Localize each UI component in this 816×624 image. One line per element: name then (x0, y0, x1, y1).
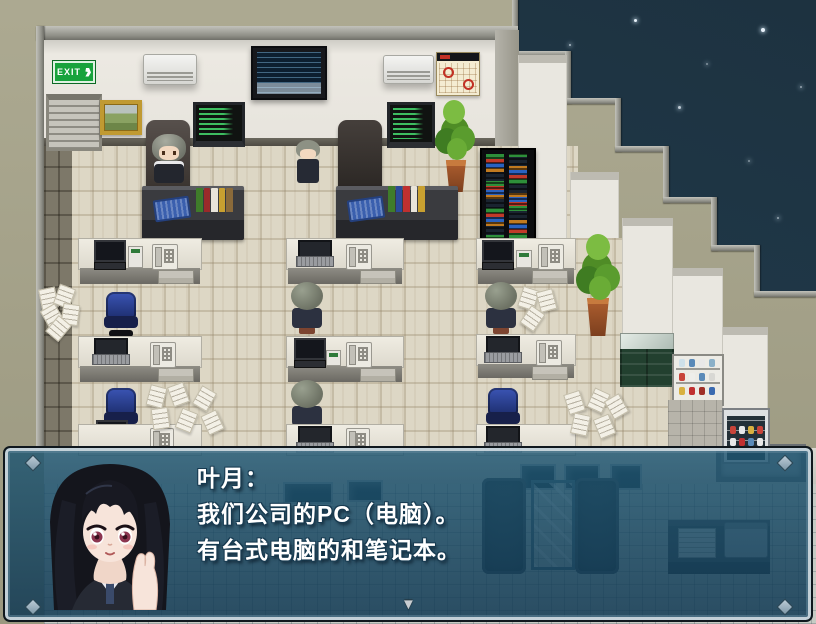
desk-device (516, 250, 532, 268)
interior-wall-column (622, 218, 673, 335)
corner-ornament-icon (777, 455, 794, 472)
calendar-mark (463, 79, 474, 90)
potted-plant (433, 98, 477, 192)
speaker-portrait (42, 460, 177, 610)
laptop (296, 426, 332, 448)
scattered-paper (151, 407, 171, 430)
desk-device (326, 350, 341, 366)
dialog-text: 叶月： 我们公司的PC（电脑）。 有台式电脑的和笔记本。 (197, 460, 777, 568)
corner-ornament-icon (25, 599, 42, 616)
calendar-header (437, 53, 479, 61)
desk-phone (346, 342, 372, 368)
shelf-row (676, 356, 720, 370)
desk-drawer (158, 368, 194, 382)
laptop (484, 336, 520, 362)
corner-ornament-icon (25, 455, 42, 472)
interior-wall-column (722, 327, 768, 410)
star-icon (748, 160, 750, 162)
wall-trim (565, 98, 621, 104)
server-leds (486, 154, 504, 238)
wall-pillar (495, 30, 519, 146)
desk-phone (536, 340, 562, 366)
dialog-line: 我们公司的PC（电脑）。 (197, 496, 777, 532)
plant-pot (585, 298, 611, 336)
wall-trim (754, 245, 760, 297)
office-chair-black (338, 120, 382, 190)
desk-phone (152, 244, 178, 270)
roller-shutter-window (46, 94, 102, 151)
floor-mat (668, 400, 722, 448)
laptop (484, 426, 520, 448)
potted-plant (574, 232, 622, 336)
desk-phone (538, 244, 564, 270)
desk-drawer (532, 366, 568, 380)
game-screen: EXIT (0, 0, 816, 624)
star-icon (800, 86, 802, 88)
npc-standing (294, 140, 322, 188)
interior-wall-column (672, 268, 723, 356)
desk-drawer (360, 368, 396, 382)
npc-body (297, 159, 319, 183)
code-monitor (387, 102, 435, 148)
desk-phone (346, 244, 372, 270)
star-icon (706, 63, 708, 65)
code-monitor (193, 102, 245, 147)
framed-painting (100, 100, 142, 135)
exit-sign: EXIT (52, 60, 96, 84)
star-icon (678, 106, 681, 109)
laptop (296, 240, 332, 266)
anime-girl-portrait (42, 460, 177, 610)
office-chair-blue (102, 292, 140, 340)
wall-trim (615, 98, 621, 152)
dish-shelf (672, 354, 724, 406)
calendar-mark (443, 67, 454, 78)
npc-seated-front (150, 134, 188, 188)
star-icon (761, 28, 765, 32)
server-leds (509, 154, 527, 238)
wall-tv (251, 46, 327, 100)
counter-cabinet (620, 349, 674, 387)
dialog-line: 有台式电脑的和笔记本。 (197, 532, 777, 568)
wall-trim (663, 146, 669, 203)
air-conditioner (143, 54, 197, 85)
star-icon (634, 19, 637, 22)
npc-seated-back (482, 282, 520, 334)
kitchen-counter (620, 333, 674, 387)
shelf-row (676, 370, 720, 384)
tv-screen (257, 52, 321, 94)
desktop-computer (482, 240, 512, 268)
wall-calendar (436, 52, 480, 96)
desk-phone (150, 342, 176, 368)
wall-trim (663, 197, 717, 203)
desk-drawer (158, 270, 194, 284)
corner-ornament-icon (777, 599, 794, 616)
desktop-computer (94, 240, 124, 268)
desktop-computer (294, 338, 324, 366)
running-man-icon (84, 68, 91, 77)
shelf-row (676, 384, 720, 396)
wall-trim (36, 26, 44, 446)
book-row (196, 188, 234, 212)
speaker-name: 叶月： (197, 460, 777, 496)
wall-trim (711, 197, 717, 251)
coffee-machine (128, 246, 143, 268)
wall-trim (615, 146, 669, 152)
exit-sign-label: EXIT (57, 67, 81, 77)
dialog-box[interactable]: 叶月： 我们公司的PC（电脑）。 有台式电脑的和笔记本。 ▼ (3, 446, 813, 622)
wall-trim (711, 245, 760, 251)
continue-arrow-icon[interactable]: ▼ (401, 596, 416, 613)
wall-trim (36, 26, 518, 40)
npc-face (300, 149, 316, 159)
npc-seated-back (288, 282, 328, 336)
desk-drawer (360, 270, 396, 284)
desk-drawer (532, 270, 568, 284)
book-row (388, 186, 426, 212)
server-rack (480, 148, 536, 244)
laptop (92, 338, 128, 364)
star-icon (569, 44, 571, 46)
counter-glass-top (620, 333, 674, 350)
interior-wall-column (570, 172, 619, 238)
npc-face (159, 146, 179, 160)
air-conditioner (383, 55, 434, 84)
wall-trim (754, 291, 816, 297)
npc-body (154, 161, 184, 183)
star-icon (777, 217, 779, 219)
